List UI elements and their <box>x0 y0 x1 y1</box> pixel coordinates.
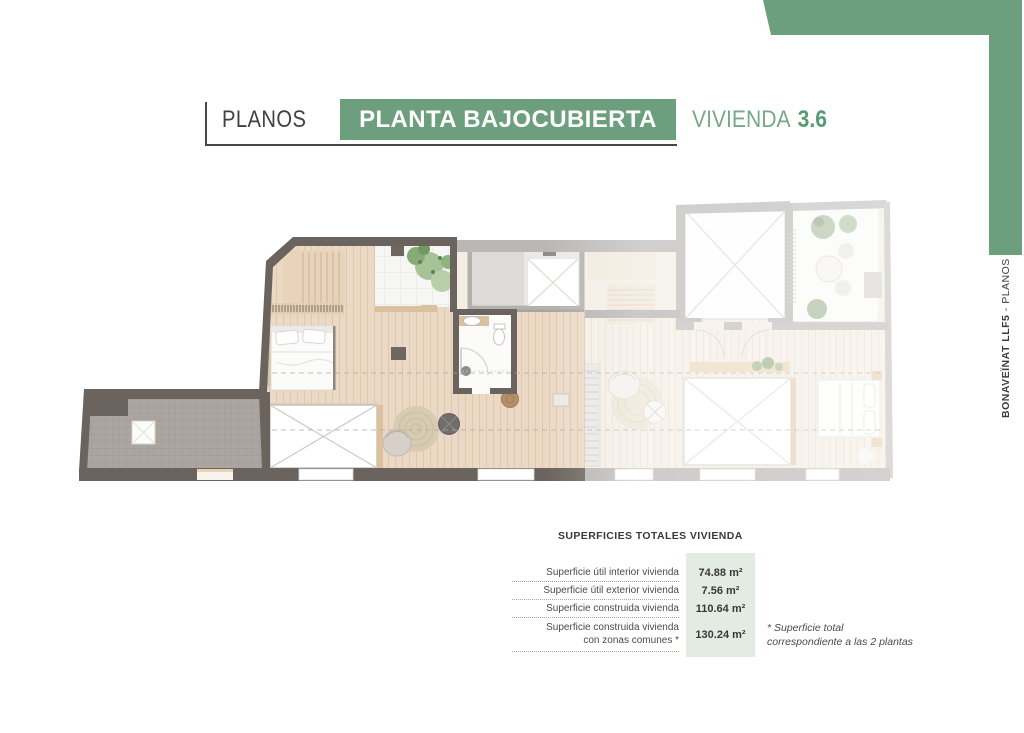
row-label: Superficie útil interior vivienda <box>512 564 679 582</box>
footnote-line: * Superficie total <box>767 622 843 634</box>
table-row: Superficie construida viviendacon zonas … <box>512 618 755 652</box>
row-value: 7.56 m² <box>686 582 755 600</box>
table-row: Superficie construida vivienda 110.64 m² <box>512 600 755 618</box>
column <box>391 347 406 360</box>
row-label: Superficie construida vivienda <box>512 600 679 618</box>
row-label: Superficie construida viviendacon zonas … <box>512 618 679 652</box>
row-label: Superficie útil exterior vivienda <box>512 582 679 600</box>
fade-overlay <box>545 195 910 495</box>
areas-table: Superficie útil interior vivienda 74.88 … <box>512 564 755 652</box>
patio <box>270 403 383 468</box>
bath-door-gap <box>472 388 490 394</box>
row-value: 110.64 m² <box>686 600 755 618</box>
areas-table-title: SUPERFICIES TOTALES VIVIENDA <box>558 530 743 542</box>
table-row: Superficie útil exterior vivienda 7.56 m… <box>512 582 755 600</box>
table-footnote: * Superficie total correspondiente a las… <box>767 621 913 649</box>
footnote-line: correspondiente a las 2 plantas <box>767 636 913 648</box>
row-value: 74.88 m² <box>686 564 755 582</box>
bathroom <box>456 312 516 391</box>
brochure-page: PLANOS PLANTA BAJOCUBIERTA VIVIENDA 3.6 … <box>0 0 1024 733</box>
armchair <box>383 430 411 456</box>
row-value: 130.24 m² <box>686 618 755 652</box>
terrace <box>86 399 265 468</box>
bed <box>265 326 336 390</box>
table-row: Superficie útil interior vivienda 74.88 … <box>512 564 755 582</box>
